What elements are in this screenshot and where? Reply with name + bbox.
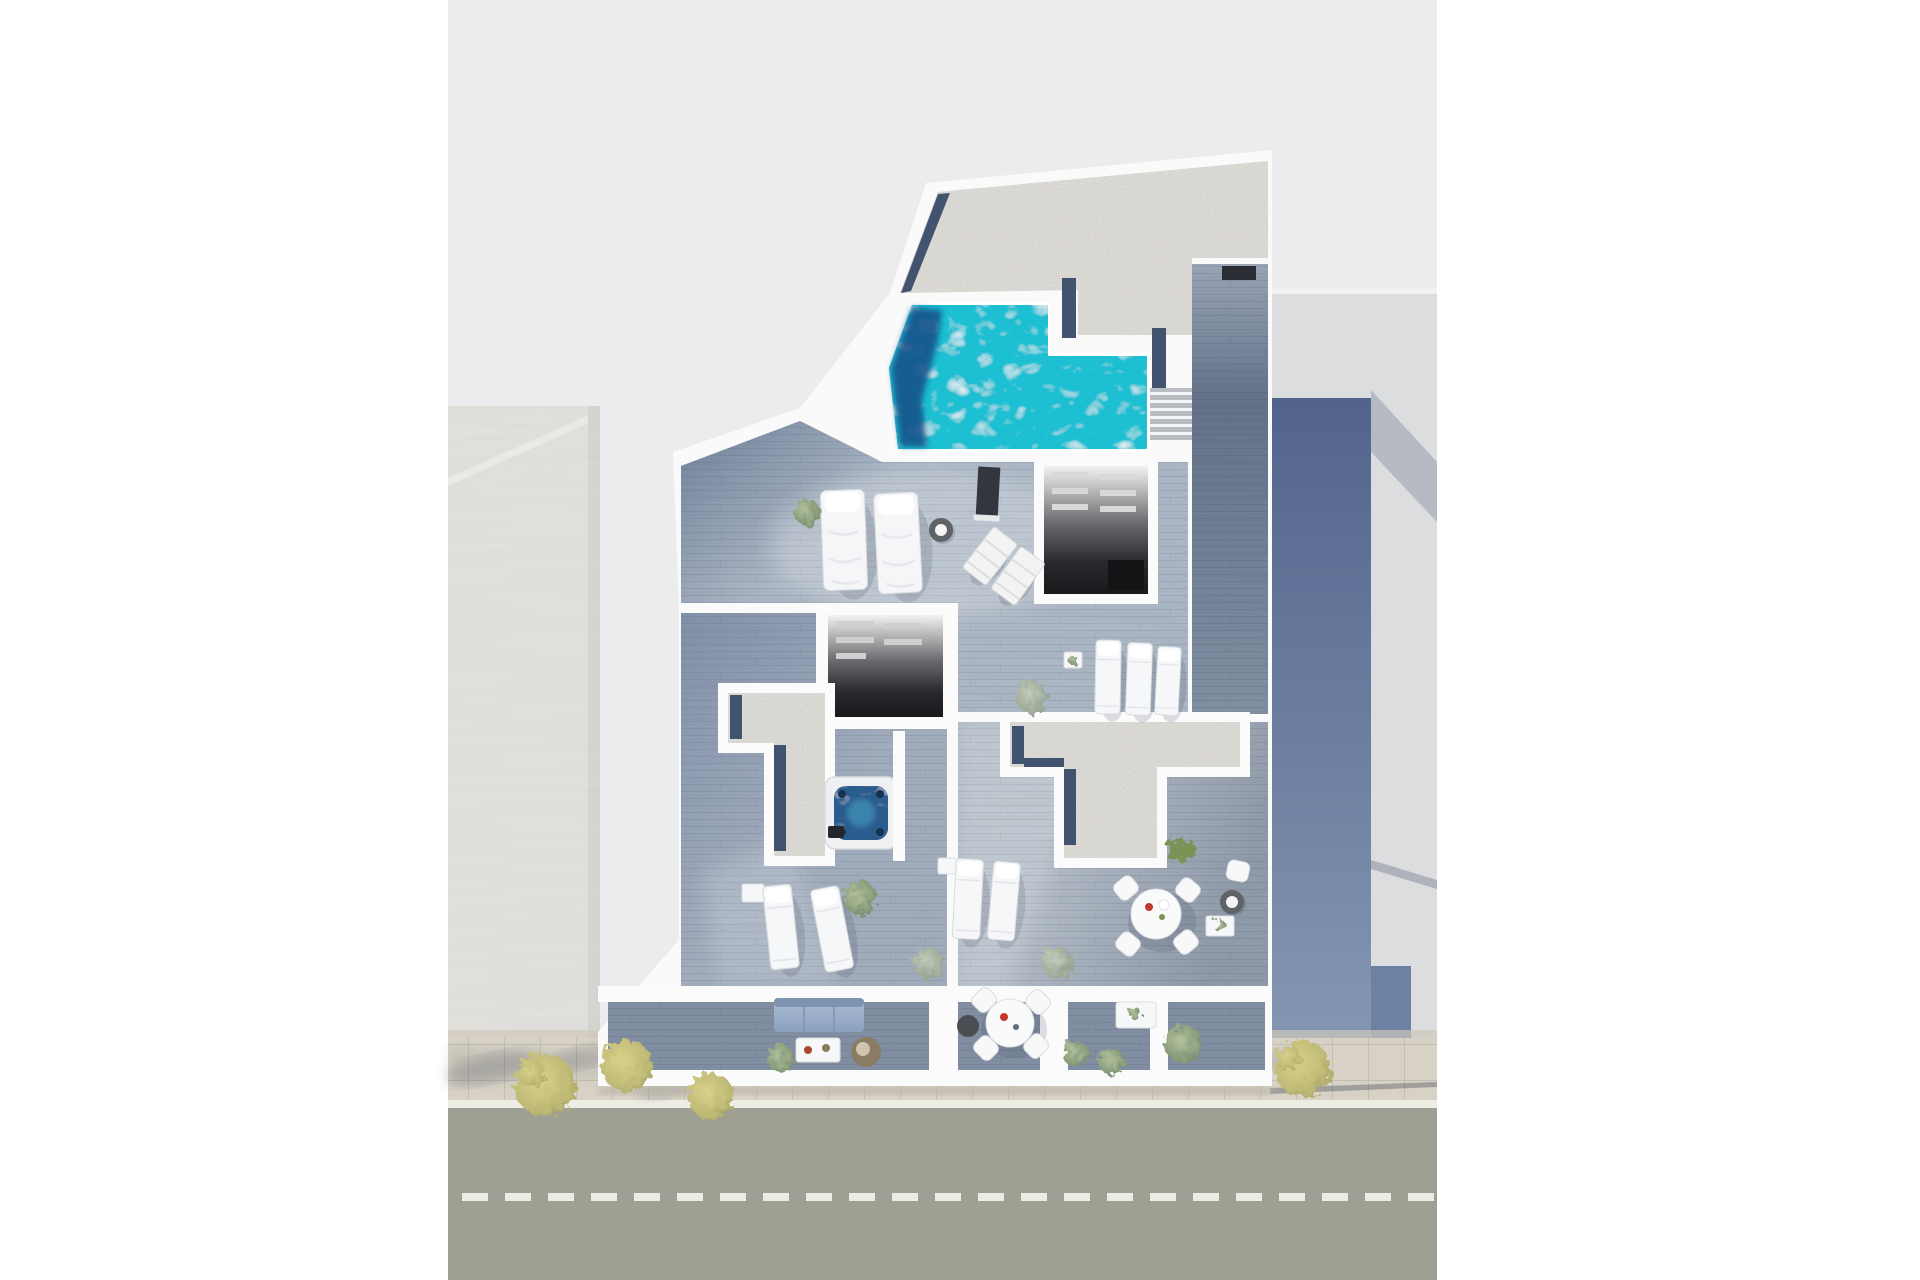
dark-room-cutaway	[816, 603, 955, 729]
shrub	[1099, 1049, 1125, 1075]
table-decor-green	[1159, 914, 1165, 920]
right-parapet	[1270, 288, 1437, 294]
asphalt-texture	[448, 1100, 1437, 1280]
side-table	[742, 884, 764, 902]
street-tree	[514, 1054, 576, 1116]
potted-plant	[794, 499, 820, 525]
side-corridor	[1192, 264, 1268, 714]
potted-plant	[1041, 946, 1073, 978]
terrace-chair	[1225, 859, 1251, 883]
shrub	[1063, 1041, 1089, 1067]
street-tree	[688, 1073, 734, 1119]
dark-room-interior	[828, 615, 943, 717]
gravel-strip	[1064, 769, 1076, 845]
table-decor-red	[1145, 903, 1153, 911]
hot-tub-towel	[828, 826, 844, 838]
gravel-strip	[1012, 726, 1024, 764]
corridor-doorway	[1222, 266, 1256, 280]
stairwell-cutaway	[1034, 456, 1158, 604]
balcony-divider	[929, 986, 958, 1072]
potted-plant	[1016, 681, 1048, 713]
terrace-tree	[1165, 1025, 1203, 1063]
shadow-step	[1371, 966, 1411, 1038]
potted-plant	[766, 1044, 794, 1072]
left-roof-texture	[448, 406, 600, 1038]
gravel-strip	[774, 745, 786, 851]
street-tree	[1274, 1040, 1330, 1096]
gravel-edge-strip-stairs	[1152, 328, 1166, 388]
partition-wall	[947, 603, 958, 731]
dark-pouf	[957, 1015, 979, 1037]
street-edge-line	[448, 1100, 1437, 1108]
potted-plant	[912, 947, 944, 979]
stairwell-void	[1108, 560, 1144, 590]
partition-wall	[893, 731, 905, 861]
balcony-divider	[1150, 986, 1168, 1072]
coffee-table	[796, 1038, 840, 1062]
potted-plant	[843, 881, 877, 915]
neighbor-building-left	[448, 406, 600, 1038]
side-table	[938, 858, 956, 874]
street-tree	[601, 1040, 653, 1092]
building-shadow-band	[1270, 398, 1371, 1038]
gravel-edge-strip-mid	[1062, 278, 1076, 338]
plant-table	[1206, 916, 1234, 936]
render-page	[0, 0, 1920, 1280]
potted-plant	[1068, 655, 1078, 665]
rendered-scene	[0, 0, 1920, 1280]
gravel-strip	[730, 695, 742, 739]
neighbor-building-right	[1270, 288, 1437, 1038]
hedge-box	[1168, 840, 1194, 861]
hot-tub	[825, 777, 897, 849]
gravel-strip	[1024, 758, 1064, 767]
